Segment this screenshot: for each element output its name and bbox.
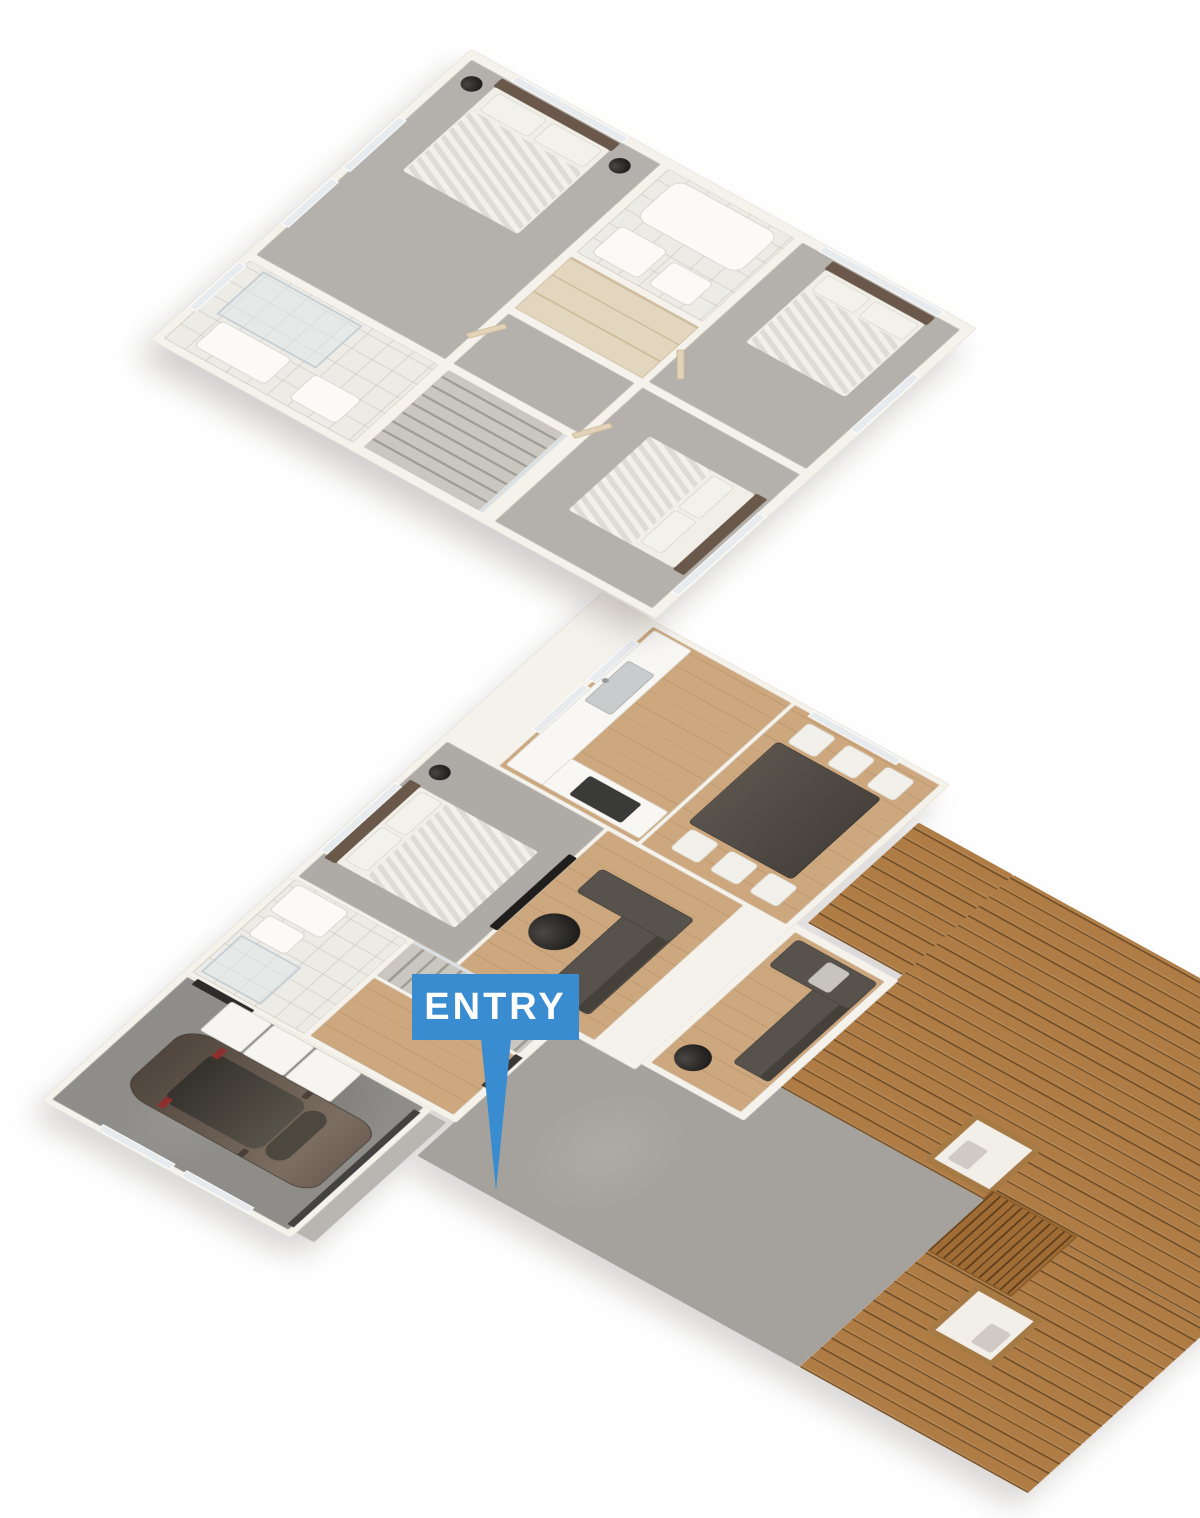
entry-marker-label: ENTRY [412, 974, 579, 1040]
ground-floor [41, 554, 1200, 1518]
outdoor-cushion [970, 1323, 1011, 1353]
door-leaf [677, 350, 685, 380]
outdoor-cushion [947, 1140, 988, 1170]
upper-floor [150, 50, 974, 618]
floorplan-canvas: ENTRY [0, 0, 1200, 1518]
